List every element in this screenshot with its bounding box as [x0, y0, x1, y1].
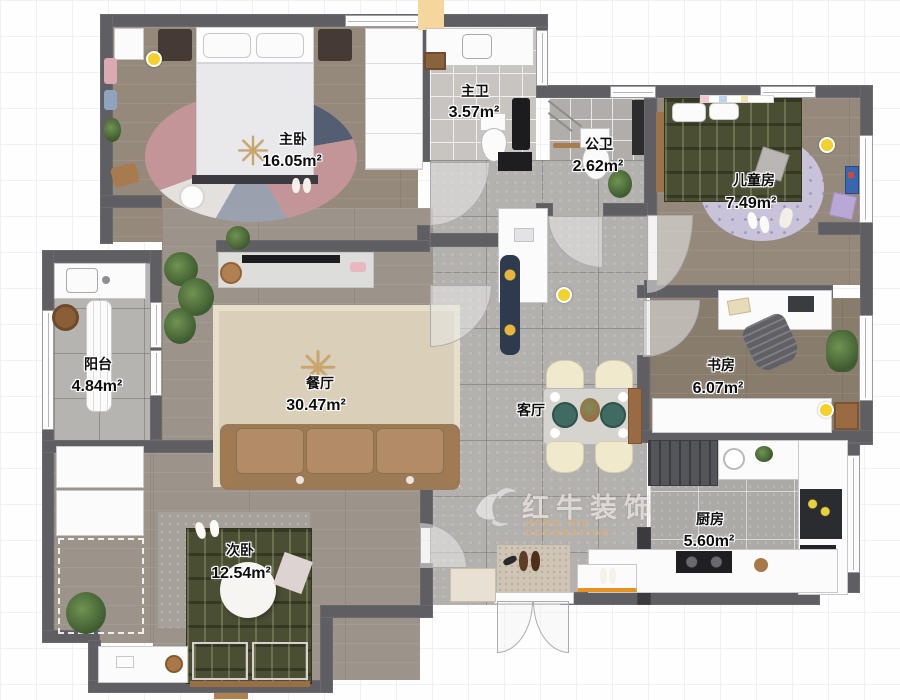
room-label-master-bedroom: 主卧: [279, 129, 307, 149]
entry-bench: [577, 564, 637, 592]
bar-cart: [628, 388, 642, 444]
headboard-shelf: [700, 95, 774, 103]
bath-mat: [498, 152, 532, 171]
plant-icon: [226, 226, 250, 250]
plate: [618, 392, 628, 402]
wood-bowl: [754, 558, 768, 572]
wall: [42, 250, 152, 263]
wall: [560, 592, 820, 605]
balcony-plants: [162, 250, 216, 348]
stove: [676, 551, 732, 573]
light-dot: [146, 51, 162, 67]
dining-chair: [546, 441, 584, 473]
dark-shelf: [632, 100, 644, 155]
sofa-button: [406, 476, 414, 484]
bed-cushion: [192, 642, 248, 680]
sofa-button: [296, 476, 304, 484]
pillow: [256, 33, 304, 58]
entry-door-swing-right: [533, 601, 569, 653]
plate: [618, 428, 628, 438]
room-area-master-bedroom: 16.05m²: [262, 153, 322, 171]
pouf: [181, 186, 203, 208]
pillow: [203, 33, 251, 58]
dining-chair: [595, 441, 633, 473]
balcony-door-panel: [150, 302, 162, 348]
faucet-icon: [102, 276, 110, 284]
window: [859, 315, 873, 401]
balcony-door-panel: [150, 350, 162, 396]
shoes: [519, 551, 528, 571]
placemat: [600, 402, 626, 428]
console-deco: [350, 262, 366, 272]
bath-sink: [462, 34, 492, 59]
plant-icon: [755, 446, 773, 462]
wall-deco: [104, 90, 117, 110]
bed-cushion: [252, 642, 308, 680]
room-label-dining: 餐厅: [306, 373, 334, 393]
basket: [52, 304, 79, 331]
shoes-white: [609, 568, 616, 584]
room-area-balcony: 4.84m²: [72, 378, 123, 396]
entry-door-swing-left: [497, 601, 533, 653]
play-mat: [829, 192, 857, 220]
window: [859, 135, 873, 223]
wall: [430, 233, 502, 247]
room-area-study: 6.07m²: [693, 380, 744, 398]
room-area-dining: 30.47m²: [286, 397, 346, 415]
sofa-cushion: [306, 428, 374, 474]
room-area-second-bedroom: 12.54m²: [211, 565, 271, 583]
window: [42, 310, 54, 430]
window: [345, 15, 419, 27]
sofa-cushion: [236, 428, 304, 474]
light-dot: [818, 402, 834, 418]
desk-stool: [165, 655, 183, 673]
plant-icon: [104, 118, 121, 142]
sofa-cushion: [376, 428, 444, 474]
pillow: [672, 103, 706, 122]
room-label-study: 书房: [707, 355, 735, 375]
bedroom-cabinet: [114, 28, 144, 60]
storage-box: [56, 490, 144, 536]
laundry-sink: [66, 268, 98, 293]
table-centerpiece: [580, 398, 600, 422]
sofa-armrest: [444, 430, 458, 486]
wall: [320, 605, 433, 618]
room-label-balcony: 阳台: [84, 354, 112, 374]
laptop: [788, 296, 814, 312]
study-window-sill: [652, 398, 832, 433]
room-area-kids-room: 7.49m²: [726, 195, 777, 213]
light-dot: [556, 287, 572, 303]
sofa-armrest: [222, 430, 236, 486]
nightstand: [318, 29, 352, 61]
room-label-second-bedroom: 次卧: [226, 540, 254, 560]
shoes: [531, 551, 540, 571]
light-dot: [819, 137, 835, 153]
window: [536, 30, 548, 86]
bed-foot-board: [190, 681, 310, 687]
plate: [550, 428, 560, 438]
closet-icon: [514, 228, 534, 242]
floor-plan: ✳ ✳: [0, 0, 900, 700]
pillow: [709, 103, 739, 120]
plant-icon: [164, 308, 196, 344]
plate: [550, 392, 560, 402]
door-step: [214, 693, 248, 699]
wall: [100, 14, 548, 27]
room-label-master-bath: 主卫: [461, 81, 489, 101]
wall-deco: [104, 58, 117, 84]
desk-paper: [116, 656, 134, 668]
shoes-white: [600, 568, 607, 584]
wall: [100, 195, 162, 208]
room-label-living: 客厅: [517, 400, 545, 420]
room-area-master-bath: 3.57m²: [449, 104, 500, 122]
room-label-public-bath: 公卫: [585, 134, 613, 154]
wall: [603, 203, 648, 216]
storage-box: [56, 446, 144, 488]
fridge: [800, 489, 842, 539]
kitchen-sink: [723, 448, 745, 470]
bath-yellow-cabinet: [418, 0, 444, 30]
room-area-kitchen: 5.60m²: [684, 533, 735, 551]
range-hood: [648, 440, 718, 486]
toy-block-red: [848, 172, 854, 178]
shoe-cabinet: [450, 568, 496, 602]
toy-blocks: [845, 166, 859, 194]
room-label-kids-room: 儿童房: [733, 170, 775, 190]
window: [847, 455, 860, 573]
side-table: [220, 262, 242, 284]
slipper: [303, 178, 311, 193]
plant-icon: [66, 592, 106, 634]
wardrobe: [365, 28, 423, 170]
mirror-shelf: [424, 52, 446, 70]
room-area-public-bath: 2.62m²: [573, 158, 624, 176]
corridor-plant-strip: [500, 255, 520, 355]
shower-fixture: [512, 98, 530, 150]
wall: [420, 563, 433, 610]
placemat: [552, 402, 578, 428]
wall: [320, 605, 333, 693]
slipper: [292, 178, 300, 193]
tv: [242, 255, 340, 263]
wood-cabinet: [834, 402, 859, 430]
sofa: [220, 424, 460, 490]
nightstand: [158, 29, 192, 61]
plant-icon: [826, 330, 858, 372]
room-label-kitchen: 厨房: [696, 509, 724, 529]
window: [610, 86, 656, 98]
